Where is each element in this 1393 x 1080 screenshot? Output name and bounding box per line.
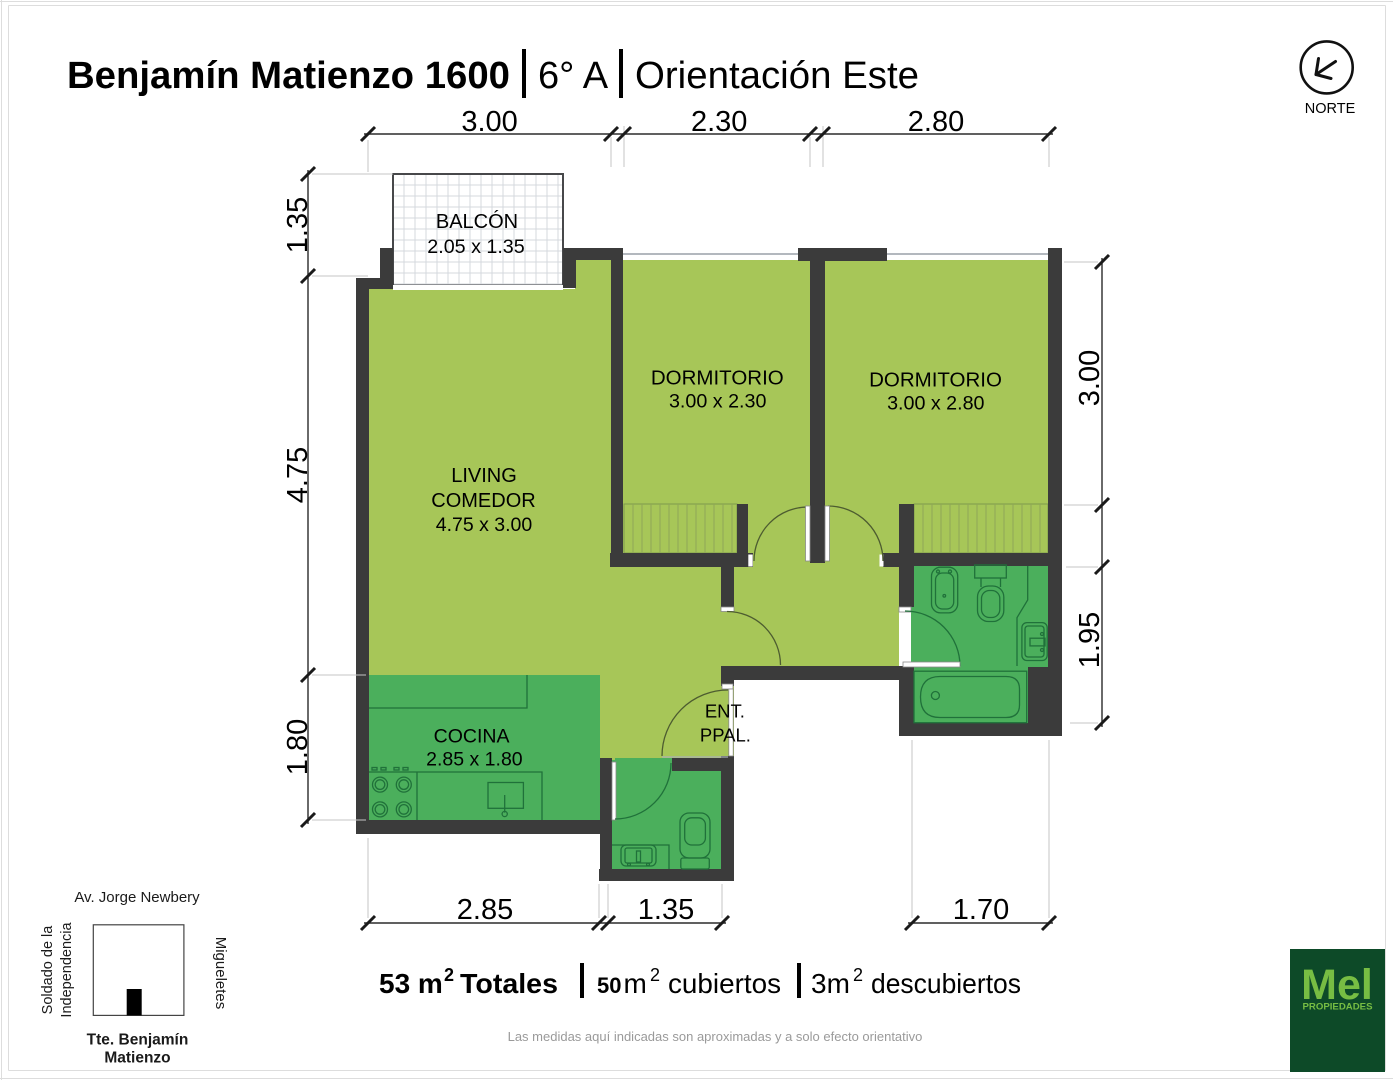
svg-text:2.85 x 1.80: 2.85 x 1.80 — [426, 749, 523, 771]
svg-text:cubiertos: cubiertos — [668, 968, 781, 999]
svg-text:Independencia: Independencia — [59, 922, 75, 1018]
svg-text:COMEDOR: COMEDOR — [431, 490, 535, 512]
svg-text:Tte. Benjamín: Tte. Benjamín — [87, 1032, 189, 1049]
svg-text:PPAL.: PPAL. — [700, 725, 751, 746]
svg-text:DORMITORIO: DORMITORIO — [869, 369, 1002, 392]
svg-text:Soldado de la: Soldado de la — [40, 925, 56, 1015]
svg-text:2.30: 2.30 — [691, 106, 747, 138]
svg-text:3m: 3m — [811, 968, 850, 999]
svg-text:BALCÓN: BALCÓN — [436, 210, 518, 233]
svg-text:Av. Jorge Newbery: Av. Jorge Newbery — [74, 889, 200, 906]
svg-text:2: 2 — [853, 965, 863, 985]
svg-text:3.00 x 2.80: 3.00 x 2.80 — [887, 393, 984, 415]
svg-text:Migueletes: Migueletes — [212, 937, 229, 1010]
svg-text:1.70: 1.70 — [953, 894, 1009, 926]
svg-text:1.35: 1.35 — [638, 894, 694, 926]
svg-text:1.95: 1.95 — [1074, 612, 1106, 668]
svg-text:2.85: 2.85 — [457, 894, 513, 926]
svg-text:3.00: 3.00 — [1074, 350, 1106, 406]
svg-text:2.80: 2.80 — [908, 106, 964, 138]
svg-text:3.00 x 2.30: 3.00 x 2.30 — [669, 391, 766, 413]
svg-text:descubiertos: descubiertos — [871, 968, 1021, 999]
svg-text:53 m: 53 m — [379, 968, 443, 999]
svg-text:50: 50 — [597, 973, 621, 998]
svg-text:PROPIEDADES: PROPIEDADES — [1303, 1002, 1373, 1012]
svg-text:6° A: 6° A — [538, 55, 609, 97]
svg-text:m: m — [624, 968, 647, 999]
svg-text:3.00: 3.00 — [461, 106, 517, 138]
svg-text:DORMITORIO: DORMITORIO — [651, 367, 784, 390]
svg-text:Las medidas aquí indicadas son: Las medidas aquí indicadas son aproximad… — [508, 1029, 923, 1044]
svg-text:LIVING: LIVING — [451, 465, 517, 487]
svg-text:4.75 x 3.00: 4.75 x 3.00 — [436, 514, 533, 536]
svg-text:2.05 x 1.35: 2.05 x 1.35 — [427, 236, 524, 258]
svg-text:Matienzo: Matienzo — [104, 1050, 170, 1067]
svg-text:4.75: 4.75 — [282, 447, 314, 503]
svg-text:1.80: 1.80 — [282, 719, 314, 775]
svg-text:2: 2 — [444, 965, 454, 985]
svg-text:Orientación Este: Orientación Este — [635, 55, 919, 97]
svg-text:2: 2 — [650, 965, 660, 985]
svg-text:1.35: 1.35 — [282, 197, 314, 253]
svg-text:ENT.: ENT. — [705, 701, 745, 722]
svg-text:COCINA: COCINA — [434, 726, 510, 748]
svg-text:NORTE: NORTE — [1305, 101, 1356, 117]
svg-text:Totales: Totales — [460, 968, 558, 999]
svg-text:Benjamín Matienzo 1600: Benjamín Matienzo 1600 — [67, 55, 510, 97]
